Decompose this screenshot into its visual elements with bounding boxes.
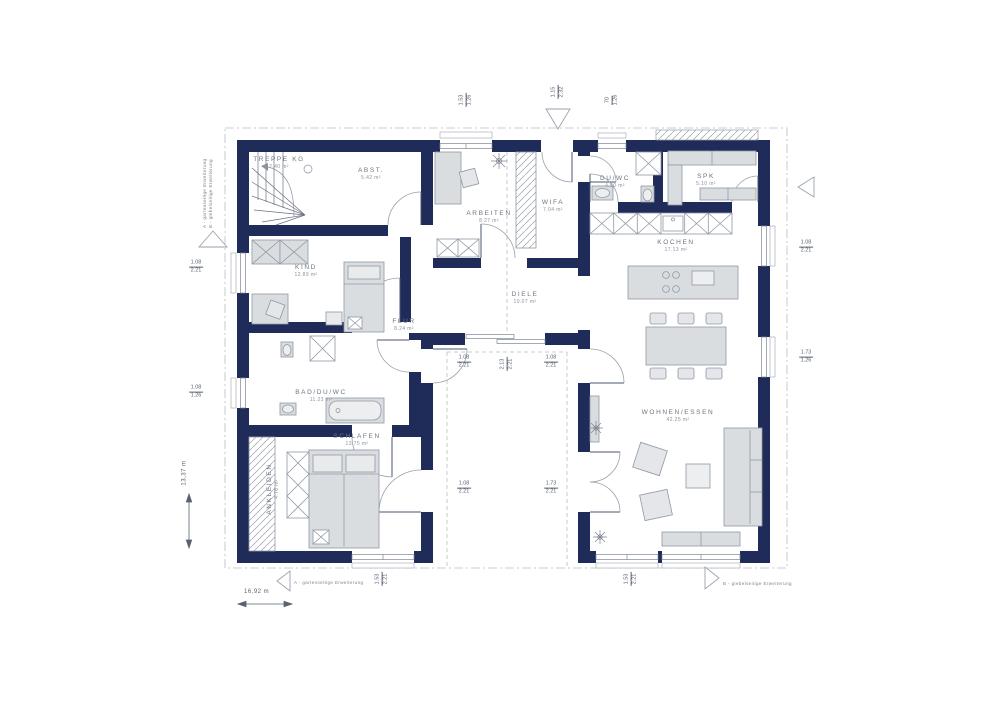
dim-right-dining-window: 1.731.26 [799, 350, 813, 365]
kind-desk [252, 294, 342, 325]
dim-terrace-slider: 2.132.21 [500, 357, 515, 371]
dim-schlafen-terrace-door: 1.082.21 [457, 481, 471, 496]
note-bottom-left: A - gartenseitige Erweiterung [294, 580, 363, 585]
entrance-marker [546, 109, 570, 129]
dim-left-kind-window: 1.082.21 [189, 260, 203, 275]
dim-entrance-door: 1.152.32 [551, 85, 566, 99]
top-right-marker [798, 177, 814, 197]
overall-width-dim: 16,92 m [244, 589, 269, 595]
dim-bottom-left-window: 1.532.21 [375, 572, 390, 586]
dim-top-small-window: 701.26 [605, 93, 620, 107]
note-bottom-right: B - giebelseitige Erweiterung [723, 581, 792, 586]
living-furniture [590, 396, 762, 546]
bottom-left-marker [277, 571, 290, 591]
wall-openings [352, 140, 758, 512]
staircase [252, 152, 312, 225]
ankleiden-wardrobe [249, 437, 275, 551]
bath-fixtures [280, 336, 384, 423]
dim-left-bad-window: 1.081.26 [189, 385, 203, 400]
note-side-line2: B - giebelseitige Erweiterung [208, 159, 213, 228]
dim-terrace-door-left: 1.082.21 [457, 355, 471, 370]
arbeiten-desk [435, 152, 479, 257]
spk-shelves [668, 151, 756, 205]
roller-strip [656, 130, 758, 140]
dim-right-kitchen-window: 1.082.21 [799, 240, 813, 255]
kitchen-counter [590, 213, 732, 234]
left-extension-marker [199, 231, 227, 247]
dim-top-window: 1.531.26 [459, 93, 474, 107]
floor-plan-drawing [0, 0, 1000, 707]
floor-plan-page: TREPPE KG2.40 m² ABST.5.42 m² ARBEITEN8.… [0, 0, 1000, 707]
bedroom-furniture [287, 450, 379, 548]
kind-bed [344, 262, 384, 332]
kitchen-island [628, 266, 738, 299]
bottom-right-marker [705, 567, 719, 589]
dim-terrace-door-right: 1.082.21 [544, 355, 558, 370]
dim-wohnen-double-door: 1.732.21 [544, 481, 558, 496]
wifa-wardrobe [516, 152, 536, 248]
kind-wardrobe [252, 240, 308, 264]
dim-bottom-right-window: 1.532.21 [624, 572, 639, 586]
dining-set [646, 313, 726, 379]
overall-height-dim: 13,37 m [182, 460, 188, 485]
note-side-line1: A - gartenseitige Erweiterung [202, 159, 207, 228]
